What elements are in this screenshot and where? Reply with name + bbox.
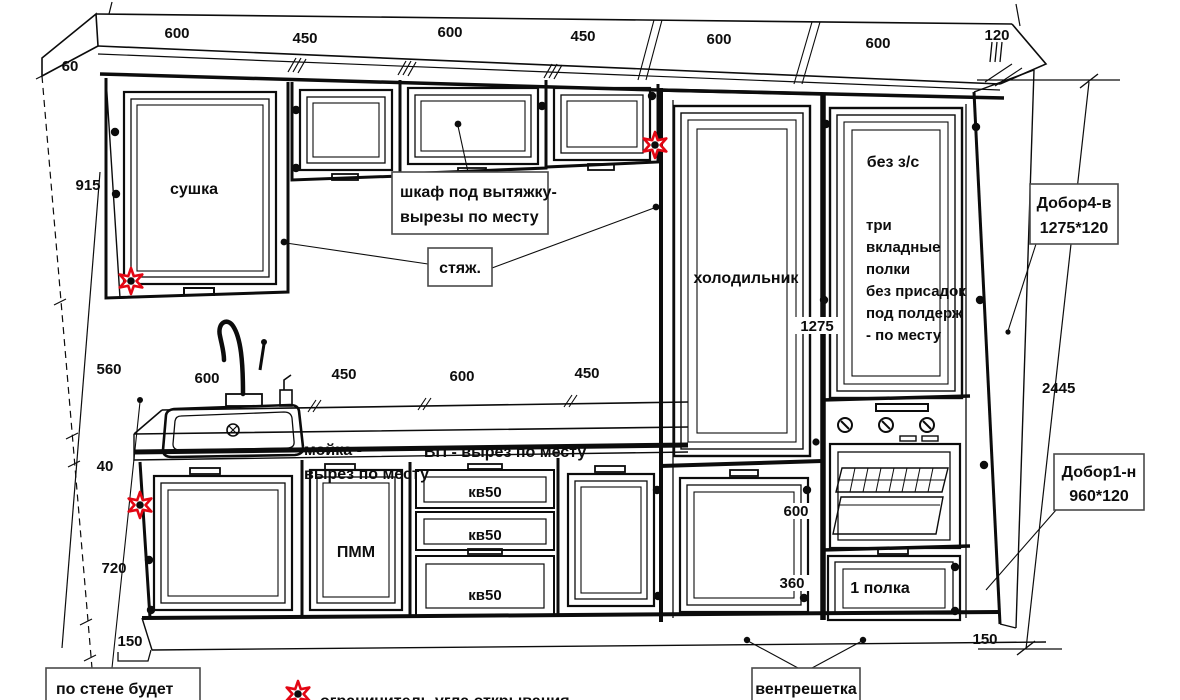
dim-top-600-3: 600 [706,31,731,48]
annotation-hood-line1: шкаф под вытяжку- [400,184,557,201]
dim-left-60: 60 [62,58,79,75]
label-shelves-4: без присадок [866,283,966,300]
annotation-filler-top: Добор4-в 1275*120 [1030,184,1118,244]
kitchen-drawing-page: 600 450 600 450 600 600 120 60 915 560 4… [0,0,1180,700]
dim-left-40: 40 [97,458,114,475]
legend-limiter-label: ограничитель угла открывания [320,693,570,700]
dim-drawer-360: 360 [779,575,804,592]
dim-counter-600-1: 600 [194,370,219,387]
oven [822,396,970,550]
label-drawer50-1: кв50 [468,484,501,501]
annotation-vent-label: вентрешетка [755,681,857,698]
legend-limiter: ограничитель угла открывания [287,681,570,700]
annotation-wall-note-label: по стене будет [56,681,174,698]
label-one-shelf: 1 полка [850,580,910,597]
annotation-filler-top-line1: Добор4-в [1037,195,1112,212]
dim-top-450-1: 450 [292,30,317,47]
fitting-dots [111,92,1011,643]
dim-under-fridge-600: 600 [783,503,808,520]
label-sink-line1: мойка - [304,442,362,459]
annotation-vent-grille: вентрешетка [752,668,860,700]
annotation-filler-bottom-line2: 960*120 [1069,488,1129,505]
label-shelves-6: - по месту [866,327,942,344]
label-fridge: холодильник [694,270,800,287]
left-wall-and-dimension-chain [36,73,100,692]
limiter-star-legend-icon [287,681,310,700]
label-shelves-1: три [866,217,892,234]
dim-left-915: 915 [75,177,100,194]
base-cabinet-dishwasher [310,464,402,610]
fridge-column [658,88,823,622]
right-side-panel [974,70,1034,628]
annotation-filler-top-line2: 1275*120 [1040,220,1109,237]
annotation-tie: стяж. [428,248,492,286]
annotation-filler-bottom-line1: Добор1-н [1062,464,1137,481]
dim-counter-600-2: 600 [449,368,474,385]
label-drawer50-2: кв50 [468,527,501,544]
label-sink-line2: вырез по месту [304,466,429,483]
label-no-back: без з/с [867,154,920,171]
annotation-wall-note: по стене будет [46,668,200,700]
dim-top-120: 120 [984,27,1009,44]
label-shelves-3: полки [866,261,910,278]
label-drawer50-3: кв50 [468,587,501,604]
dim-fridge-1275: 1275 [800,318,833,335]
label-shelves-2: вкладные [866,239,941,256]
label-dishwasher: ПММ [337,544,375,561]
wall-cabinet-450-left [292,80,400,180]
faucet [219,322,267,406]
kitchen-elevation-diagram: 600 450 600 450 600 600 120 60 915 560 4… [0,0,1180,700]
dim-counter-450-2: 450 [574,365,599,382]
label-worktop: ВП - вырез по месту [424,444,586,461]
dim-top-600-4: 600 [865,35,890,52]
cornice [42,2,1046,98]
dim-left-150: 150 [117,633,142,650]
wall-cabinet-450-right [546,80,658,170]
dim-counter-450-1: 450 [331,366,356,383]
countertop [134,395,688,460]
base-cabinet-door-450 [568,466,654,606]
base-cabinet-door-600 [140,460,302,618]
dim-top-450-2: 450 [570,28,595,45]
soap-dispenser [280,375,292,406]
dim-left-560: 560 [96,361,121,378]
label-shelves-5: под полдерж [866,305,963,322]
annotation-hood-line2: вырезы по месту [400,209,539,226]
annotation-hood-cabinet: шкаф под вытяжку- вырезы по месту [392,172,557,234]
annotation-tie-label: стяж. [439,260,481,277]
dim-top-600-1: 600 [164,25,189,42]
shelf-column [830,104,966,618]
dim-top-600-2: 600 [437,24,462,41]
limiter-star-icon [129,492,152,518]
dim-right-150: 150 [972,631,997,648]
annotation-filler-bottom: Добор1-н 960*120 [1054,454,1144,510]
dim-total-2445: 2445 [1042,380,1075,397]
label-dryer: сушка [170,181,218,198]
wall-cabinet-600-hood [400,80,546,174]
